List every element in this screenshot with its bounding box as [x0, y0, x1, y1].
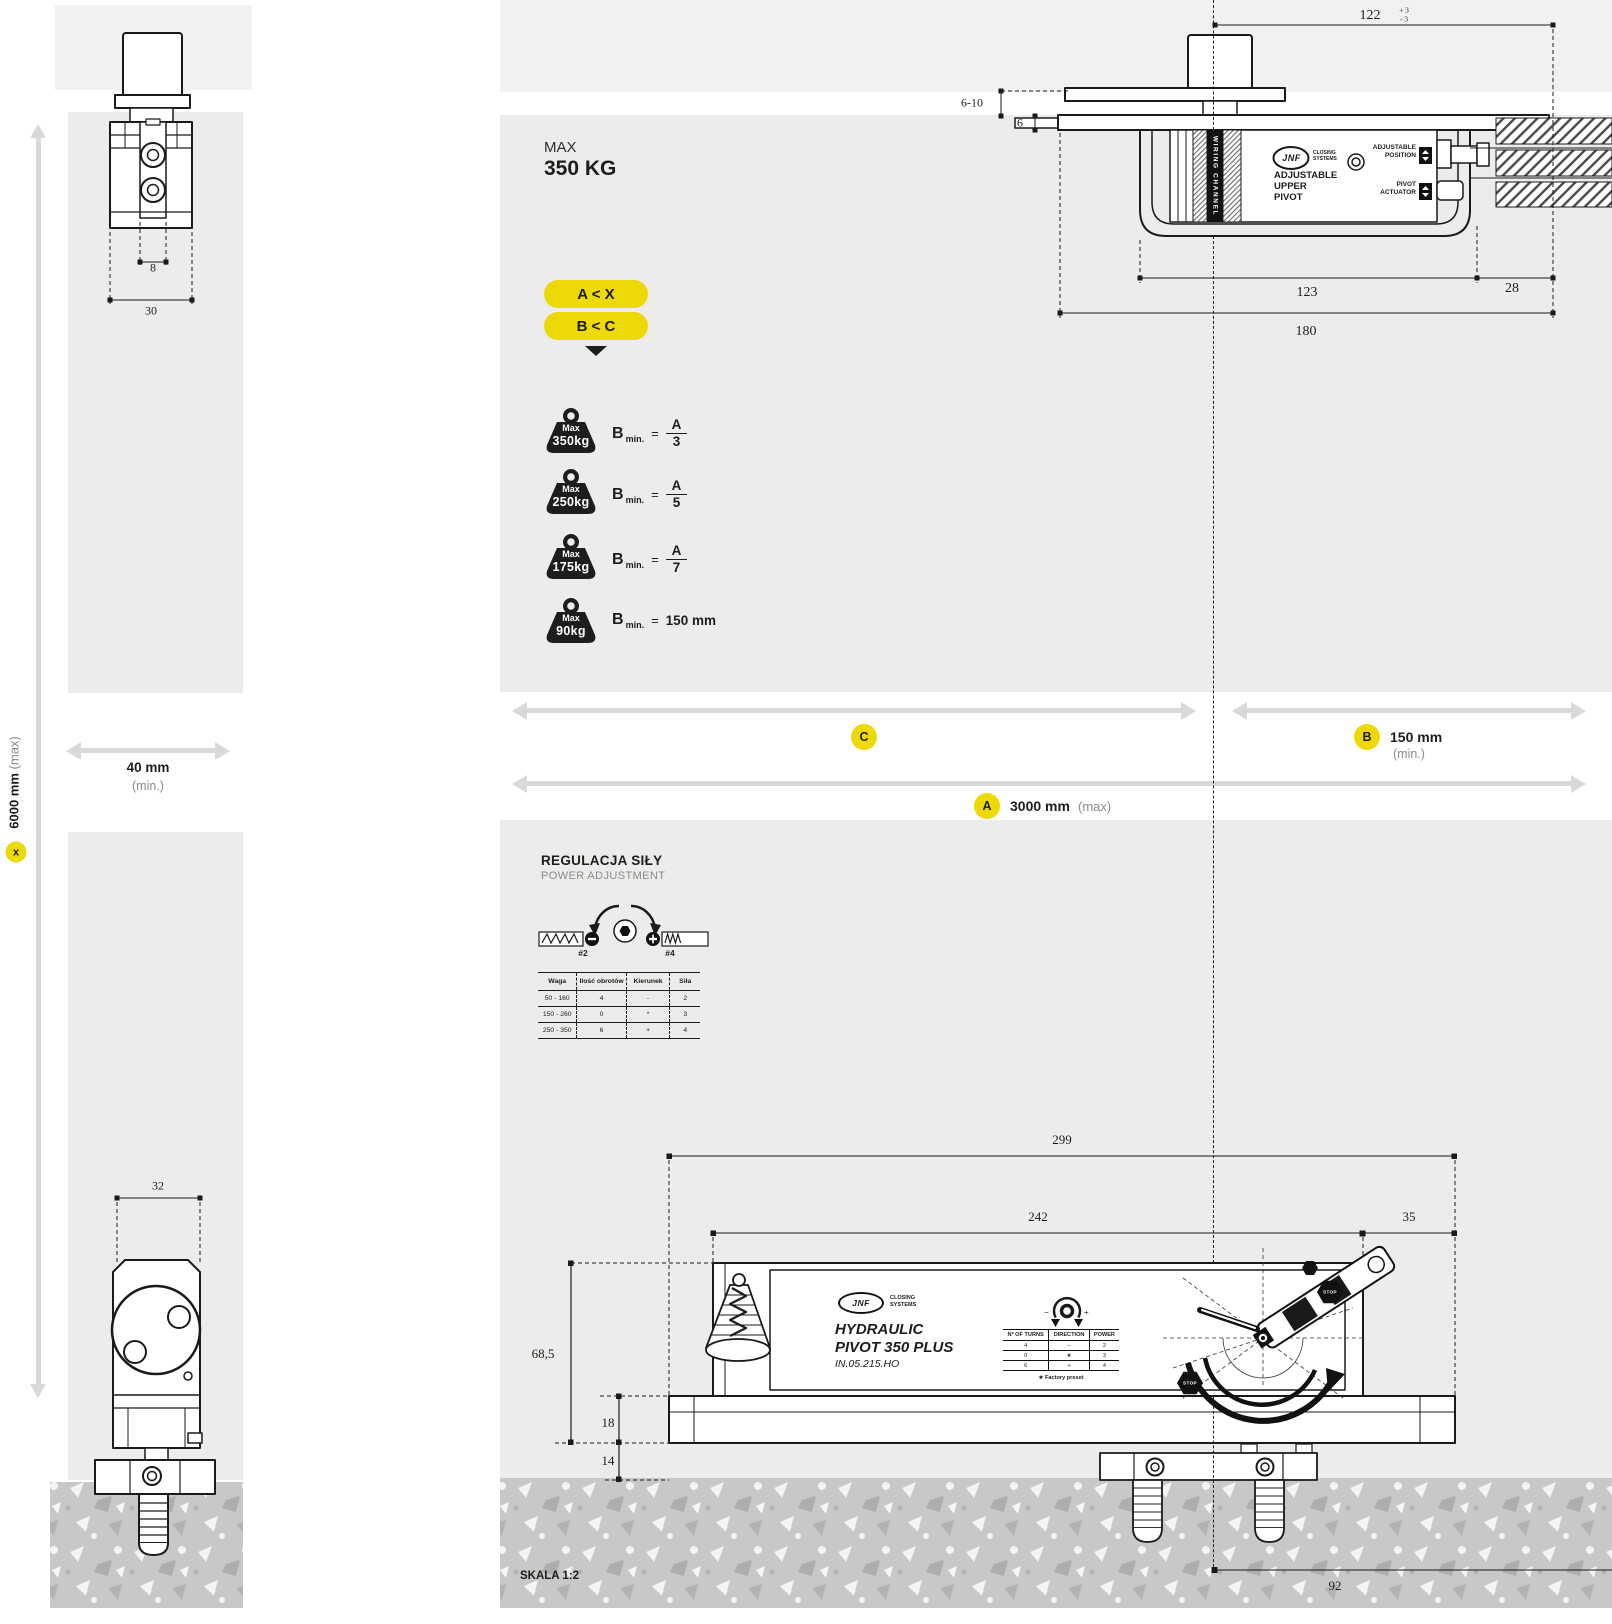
dim-6-10-label: 6-10: [961, 96, 983, 111]
scale-label: SKALA 1:2: [520, 1570, 579, 1582]
pivot-axis-centerline: [1213, 1396, 1214, 1572]
a-badge: A: [974, 793, 1000, 819]
cell: +: [626, 1023, 670, 1039]
a-value: 3000 mm: [1010, 798, 1070, 814]
dim-122-tol-plus: + 3: [1399, 6, 1409, 15]
device-brand-closing: CLOSING: [890, 1295, 915, 1301]
pivot-axis-centerline: [1213, 0, 1214, 130]
col-turns: Nº OF TURNS: [1003, 1330, 1049, 1341]
equals: =: [651, 426, 659, 441]
factory-preset-note: ★ Factory preset: [1038, 1375, 1083, 1381]
b-symbol: B: [612, 611, 624, 629]
upper-pivot-title-1: ADJUSTABLE: [1274, 170, 1337, 181]
door-thickness-suffix: (min.): [132, 779, 164, 793]
cell: 2: [1089, 1341, 1119, 1351]
frac-den: 5: [666, 495, 688, 510]
dim-122-tol-minus: - 3: [1400, 15, 1408, 24]
frac-num: A: [666, 544, 688, 560]
c-badge: C: [851, 724, 877, 750]
weight-350kg-max: Max: [543, 424, 599, 433]
dim-180-label: 180: [1296, 324, 1317, 340]
cell: 0: [577, 1007, 626, 1023]
cell: 4: [1089, 1361, 1119, 1371]
power-adjustment-subtitle: POWER ADJUSTMENT: [541, 870, 665, 882]
cell: 6: [1003, 1361, 1049, 1371]
dim-32-label: 32: [152, 1179, 164, 1194]
weight-175kg-icon: Max 175kg: [543, 533, 599, 579]
product-line-1: HYDRAULIC: [835, 1321, 923, 1338]
cell: ★: [1049, 1351, 1090, 1361]
cell: 4: [670, 1023, 700, 1039]
dim-18-label: 18: [602, 1415, 615, 1431]
dim-6-label: 6: [1017, 116, 1023, 131]
col-ilosc: Ilość obrotów: [577, 973, 626, 991]
power-table-row: 250 - 3506+4: [538, 1023, 700, 1039]
frac-num: A: [666, 418, 688, 434]
mini-table-row: 6+4: [1003, 1361, 1119, 1371]
a-suffix: (max): [1078, 799, 1111, 814]
dim-299-label: 299: [1052, 1132, 1072, 1148]
power-adjustment-icon: [515, 895, 745, 960]
col-sila: Siła: [670, 973, 700, 991]
weight-350kg-icon: Max 350kg: [543, 407, 599, 453]
rule-a-lt-x: A < X: [544, 280, 648, 308]
rule-b-lt-c: B < C: [544, 312, 648, 340]
b-min-150: 150 mm: [666, 613, 716, 628]
tag-2-label: #2: [578, 948, 587, 958]
dim-68-5-label: 68,5: [532, 1346, 555, 1362]
product-line-2: PIVOT 350 PLUS: [835, 1339, 953, 1356]
pivot-actuator-2: ACTUATOR: [1330, 189, 1416, 196]
cell: 6: [577, 1023, 626, 1039]
wiring-channel-label: WIRING CHANNEL: [1212, 136, 1219, 216]
weight-175kg-max: Max: [543, 550, 599, 559]
equals: =: [651, 613, 659, 628]
dim-242-label: 242: [1028, 1209, 1048, 1225]
power-adjustment-table: Waga Ilość obrotów Kierunek Siła 50 - 16…: [538, 972, 700, 1039]
cell: 150 - 260: [538, 1007, 577, 1023]
door-thickness-value: 40 mm: [127, 760, 170, 775]
dim-28-label: 28: [1505, 281, 1519, 297]
equals: =: [651, 487, 659, 502]
equals: =: [651, 552, 659, 567]
b-subscript: min.: [626, 560, 645, 570]
dial-minus: −: [1044, 1308, 1049, 1317]
b-badge: B: [1354, 724, 1380, 750]
product-code: IN.05.215.HO: [835, 1358, 899, 1370]
stop-badge-bottom: STOP: [1183, 1381, 1197, 1386]
tag-4-label: #4: [665, 948, 674, 958]
cell: +: [1049, 1361, 1090, 1371]
dim-14-label: 14: [602, 1453, 615, 1469]
datasheet-page: 6000 mm (max) x 40 mm (min.): [0, 0, 1612, 1624]
cell: 4: [577, 991, 626, 1007]
b-value: 150 mm: [1390, 729, 1442, 745]
dim-123-label: 123: [1297, 285, 1318, 301]
adjustable-position-2: POSITION: [1330, 152, 1416, 159]
power-adjustment-title: REGULACJA SIŁY: [541, 853, 662, 868]
height-value: 6000 mm: [7, 773, 22, 829]
cell: 50 - 160: [538, 991, 577, 1007]
col-waga: Waga: [538, 973, 577, 991]
cell: 4: [1003, 1341, 1049, 1351]
b-symbol: B: [612, 425, 624, 443]
weight-90kg-icon: Max 90kg: [543, 597, 599, 643]
a-span-arrow: [518, 781, 1580, 786]
weight-250kg-value: 250kg: [543, 495, 599, 509]
max-load-value: 350 KG: [544, 157, 616, 181]
jnf-logo: JNF: [1274, 148, 1309, 168]
cell: -: [626, 991, 670, 1007]
dim-92-label: 92: [1329, 1578, 1342, 1594]
dim-35-label: 35: [1403, 1209, 1416, 1225]
weight-250kg-icon: Max 250kg: [543, 468, 599, 514]
power-table-row: 150 - 2600*3: [538, 1007, 700, 1023]
bottom-pivot-front-view: [50, 1175, 260, 1565]
formula-350kg: Bmin. = A3: [612, 418, 687, 449]
weight-250kg-max: Max: [543, 485, 599, 494]
cell: 3: [1089, 1351, 1119, 1361]
mini-table-header-row: Nº OF TURNS DIRECTION POWER: [1003, 1330, 1119, 1341]
formula-90kg: Bmin. = 150 mm: [612, 610, 716, 630]
upper-pivot-title-2: UPPER: [1274, 181, 1307, 192]
col-kierunek: Kierunek: [626, 973, 670, 991]
cell: *: [626, 1007, 670, 1023]
power-table-header-row: Waga Ilość obrotów Kierunek Siła: [538, 973, 700, 991]
cell: 0: [1003, 1351, 1049, 1361]
height-x-badge: x: [6, 842, 27, 863]
frac-num: A: [666, 479, 688, 495]
max-load-label: MAX: [544, 139, 577, 156]
frac-den: 7: [666, 560, 688, 575]
b-symbol: B: [612, 551, 624, 569]
weight-175kg-value: 175kg: [543, 560, 599, 574]
pivot-actuator-1: PIVOT: [1330, 181, 1416, 188]
weight-90kg-max: Max: [543, 614, 599, 623]
col-power: POWER: [1089, 1330, 1119, 1341]
mini-table-row: 4−2: [1003, 1341, 1119, 1351]
dim-122-label: 122: [1360, 8, 1381, 24]
c-span-arrow: [518, 708, 1190, 713]
adjustable-position-1: ADJUSTABLE: [1330, 144, 1416, 151]
height-suffix: (max): [7, 736, 22, 769]
dial-plus: +: [1084, 1308, 1089, 1317]
frac-den: 3: [666, 434, 688, 449]
upper-pivot-front-view: [20, 15, 260, 325]
mini-table-row: 0★3: [1003, 1351, 1119, 1361]
pivot-axis-centerline: [1213, 236, 1214, 1263]
b-subscript: min.: [626, 434, 645, 444]
col-direction: DIRECTION: [1049, 1330, 1090, 1341]
device-jnf-logo: JNF: [838, 1292, 884, 1314]
rules-pointer-icon: [585, 346, 607, 356]
weight-350kg-value: 350kg: [543, 434, 599, 448]
door-thickness-arrow: [72, 748, 224, 753]
cell: 2: [670, 991, 700, 1007]
weight-90kg-value: 90kg: [543, 624, 599, 638]
b-subscript: min.: [626, 620, 645, 630]
stop-badge-top: STOP: [1323, 1290, 1337, 1295]
b-span-arrow: [1238, 708, 1580, 713]
formula-250kg: Bmin. = A5: [612, 479, 687, 510]
upper-pivot-title-3: PIVOT: [1274, 192, 1303, 203]
b-symbol: B: [612, 486, 624, 504]
formula-175kg: Bmin. = A7: [612, 544, 687, 575]
b-subscript: min.: [626, 495, 645, 505]
dim-8-label: 8: [150, 261, 156, 276]
device-brand-systems: SYSTEMS: [890, 1302, 916, 1308]
turns-direction-power-table: Nº OF TURNS DIRECTION POWER 4−2 0★3 6+4: [1003, 1329, 1119, 1371]
cell: 250 - 350: [538, 1023, 577, 1039]
cell: −: [1049, 1341, 1090, 1351]
cell: 3: [670, 1007, 700, 1023]
b-suffix: (min.): [1393, 747, 1425, 761]
power-table-row: 50 - 1604-2: [538, 991, 700, 1007]
dim-30-label: 30: [145, 304, 157, 319]
